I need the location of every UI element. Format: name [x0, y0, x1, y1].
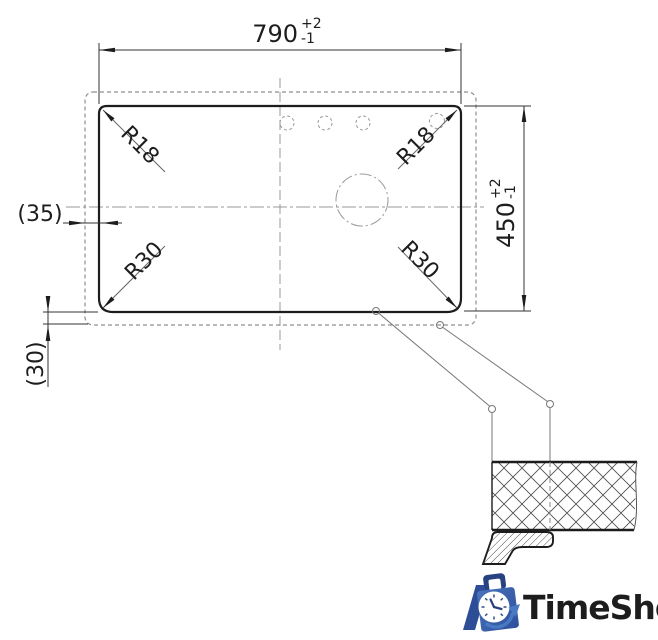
countertop-crosshatch: [492, 462, 637, 530]
leader-point-section-outer: [547, 401, 554, 408]
arrowhead-down-icon: [522, 295, 527, 311]
dim-width-tol-plus: +2: [301, 16, 322, 32]
dim-height-tol-plus: +2: [488, 178, 504, 199]
dim-height-value: 450: [492, 202, 520, 248]
arrowhead-up-icon: [46, 325, 51, 341]
arrowhead-right-icon: [445, 48, 461, 53]
dimension-width: 790 +2 -1: [99, 16, 461, 104]
dimension-side-offset: (35): [17, 202, 122, 227]
faucet-hole-3: [356, 116, 370, 130]
radius-label-top-right: R18: [392, 122, 440, 170]
logo-text: TimeShop: [523, 588, 658, 627]
radius-label-top-left: R18: [115, 121, 163, 169]
arrowhead-right-icon: [69, 221, 85, 226]
drawing-canvas: 790 +2 -1 450 +2 -1 (35) (30): [0, 0, 658, 640]
centerlines: [66, 78, 484, 350]
faucet-hole-1: [280, 116, 294, 130]
dimension-height: 450 +2 -1: [464, 106, 531, 311]
arrowhead-corner-tr-icon: [446, 110, 458, 122]
section-leaders: [373, 308, 554, 463]
sink-cutout-technical-drawing: 790 +2 -1 450 +2 -1 (35) (30): [0, 0, 658, 640]
leader-point-section-cutout: [489, 406, 496, 413]
radius-label-bottom-right: R30: [395, 236, 443, 284]
faucet-hole-2: [318, 116, 332, 130]
sink-rim-profile-section: [483, 532, 553, 564]
drain-hole-circle: [336, 174, 388, 226]
dim-bottom-offset-value: (30): [24, 341, 49, 386]
radius-label-bottom-left: R30: [120, 237, 168, 285]
arrowhead-left-icon: [102, 221, 118, 226]
arrowhead-corner-bl-icon: [103, 297, 115, 309]
dimension-bottom-offset: (30): [24, 296, 98, 387]
arrowhead-left-icon: [99, 48, 115, 53]
arrowhead-down-icon: [46, 296, 51, 312]
dim-side-offset-value: (35): [17, 202, 62, 227]
countertop-section: [492, 462, 637, 530]
dim-width-value: 790: [252, 20, 298, 48]
dim-width-tol-minus: -1: [301, 31, 315, 47]
arrowhead-up-icon: [522, 106, 527, 122]
arrowhead-corner-br-icon: [446, 297, 458, 309]
timeshop-logo: TimeShop: [463, 572, 658, 632]
dim-height-tol-minus: -1: [503, 185, 519, 199]
faucet-hole-4: [430, 114, 445, 129]
arrowhead-corner-tl-icon: [103, 110, 115, 122]
